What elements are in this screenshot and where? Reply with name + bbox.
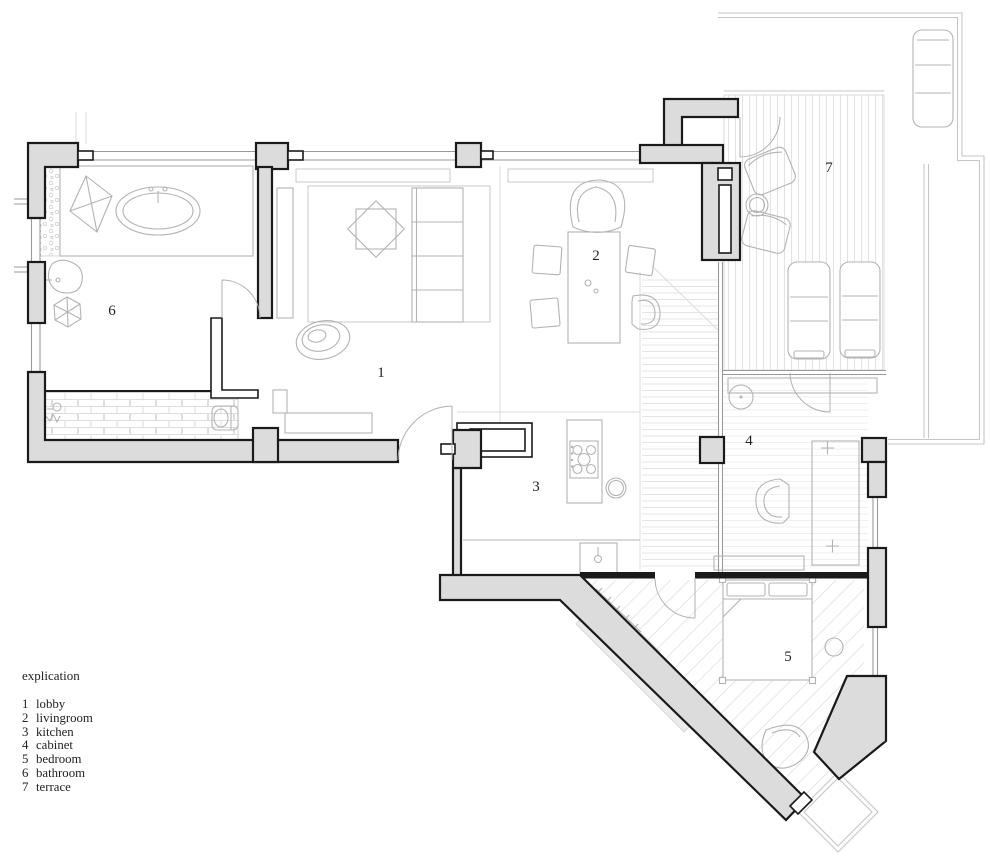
legend-item: 3kitchen [22, 726, 93, 740]
legend: explication 1lobby 2livingroom 3kitchen … [22, 668, 93, 795]
legend-item: 7terrace [22, 781, 93, 795]
decor-geosphere [54, 297, 81, 327]
sun-lounger [840, 262, 880, 358]
floor-plan-drawing: 1 2 3 4 5 6 7 [0, 0, 990, 868]
legend-item: 1lobby [22, 698, 93, 712]
frame-tab [481, 151, 493, 159]
sun-lounger [788, 262, 830, 359]
cabinet-north-glazing [722, 371, 886, 375]
legend-items: 1lobby 2livingroom 3kitchen 4cabinet 5be… [22, 698, 93, 795]
side-chair [530, 298, 560, 328]
wall-pier [456, 143, 481, 167]
side-chair [625, 245, 655, 275]
room-label-cabinet: 4 [745, 433, 753, 449]
bed [720, 577, 816, 684]
kitchen-island [567, 420, 602, 503]
kitchen-west-wall [453, 468, 461, 577]
east-pier [868, 462, 886, 497]
room-label-bedroom: 5 [784, 649, 792, 665]
room-label-livingroom: 2 [592, 248, 600, 264]
wc-tiled-floor [44, 392, 238, 440]
side-chair [532, 245, 562, 275]
room-label-terrace: 7 [825, 160, 833, 176]
bathtub-faucet [149, 187, 167, 203]
floor-plan-page: 1 2 3 4 5 6 7 explication 1lobby 2living… [0, 0, 990, 868]
legend-item: 4cabinet [22, 739, 93, 753]
lobby-furniture [273, 169, 653, 433]
bathroom-divider-wall [258, 167, 272, 318]
armchair [570, 180, 624, 233]
window-ticks [14, 199, 28, 272]
wall-pier [256, 143, 288, 169]
wall-pier [28, 262, 45, 323]
console-bench [277, 188, 293, 318]
pouf [293, 316, 354, 364]
cooktop [570, 441, 598, 478]
cabinet-floor [722, 378, 868, 570]
counter-sink [580, 543, 617, 573]
wall-pier [253, 428, 278, 462]
hall-terrace-glazing [719, 262, 723, 572]
bedroom-north-wall [695, 572, 868, 579]
legend-item: 2livingroom [22, 712, 93, 726]
low-cabinet [285, 413, 372, 433]
legend-item: 6bathroom [22, 767, 93, 781]
hall-floor [642, 278, 718, 572]
bedroom-north-wall [580, 572, 655, 579]
bathtub-platform [60, 166, 253, 256]
bathroom-sink [40, 260, 82, 293]
wc-partition [211, 318, 258, 398]
octagram-table [348, 201, 405, 258]
frame-tab [288, 151, 303, 160]
curtain-pelmet [296, 169, 450, 182]
frame-tab [78, 151, 93, 160]
room-label-bathroom: 6 [108, 303, 116, 319]
frame-tab [441, 444, 455, 454]
floor-boundary-lines [76, 112, 718, 570]
decor-crystal [70, 176, 112, 232]
hall-pier [700, 437, 724, 463]
east-pier [868, 548, 886, 627]
legend-item: 5bedroom [22, 753, 93, 767]
shelving-unit [412, 188, 463, 322]
bedroom-east-window [873, 627, 878, 676]
sun-lounger [913, 30, 953, 127]
cabinet-east-window [873, 497, 878, 548]
room-label-kitchen: 3 [532, 479, 540, 495]
room-label-lobby: 1 [377, 365, 385, 381]
east-pier [862, 438, 886, 462]
curtain-pelmet [508, 169, 653, 182]
bathroom-door [222, 280, 260, 318]
north-window-band [30, 152, 640, 161]
legend-title: explication [22, 668, 93, 684]
